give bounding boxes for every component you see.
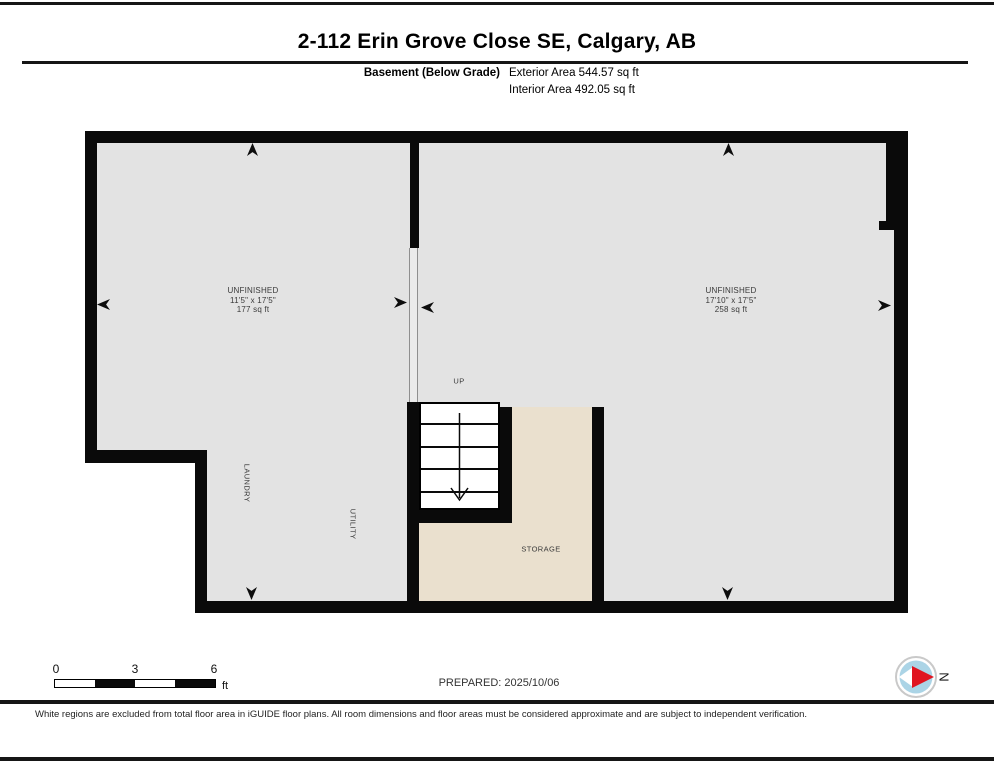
excluded-white-region [97,463,195,601]
storage-area-fill-bottom [419,523,592,601]
footer-rule [0,700,994,704]
laundry-label: LAUNDRY [243,464,252,503]
room-area: 177 sq ft [188,305,318,315]
wall-left [85,131,97,463]
wall-top [85,131,908,143]
room-area: 258 sq ft [666,305,796,315]
bottom-rule [0,757,994,761]
scale-bar-segment [95,680,135,687]
room-name: UNFINISHED [666,286,796,296]
floorplan-page: 2-112 Erin Grove Close SE, Calgary, AB B… [0,0,994,768]
wall-stair-bottom [407,510,512,523]
wall-stair-right [500,407,512,523]
wall-opening-lines [409,248,418,402]
prepared-date: PREPARED: 2025/10/06 [399,677,599,689]
scale-tick-6: 6 [204,662,224,676]
wall-right-upper-thick [886,131,908,223]
up-label: UP [453,377,464,386]
stair-direction-arrow [419,402,500,510]
utility-label: UTILITY [349,509,358,540]
wall-bottom [195,601,908,613]
wall-step-horizontal [85,450,207,463]
wall-storage-right [592,407,604,601]
wall-center-divider [410,131,419,248]
room-label-unfinished-left: UNFINISHED 11'5" x 17'5" 177 sq ft [188,286,318,315]
wall-step-vertical [195,450,207,613]
compass-north-label: N [937,672,952,681]
wall-stair-left [407,402,419,601]
room-name: UNFINISHED [188,286,318,296]
storage-label: STORAGE [521,545,560,554]
room-dims: 11'5" x 17'5" [188,296,318,306]
compass-icon: N [888,653,952,701]
scale-tick-3: 3 [125,662,145,676]
scale-bar [54,679,216,688]
scale-tick-0: 0 [46,662,66,676]
room-dims: 17'10" x 17'5" [666,296,796,306]
room-label-unfinished-right: UNFINISHED 17'10" x 17'5" 258 sq ft [666,286,796,315]
floor-plan: UNFINISHED 11'5" x 17'5" 177 sq ft UNFIN… [0,0,994,768]
disclaimer-text: White regions are excluded from total fl… [35,709,807,720]
scale-unit-label: ft [222,680,228,692]
wall-right-notch [879,221,895,230]
scale-bar-segment [175,680,215,687]
